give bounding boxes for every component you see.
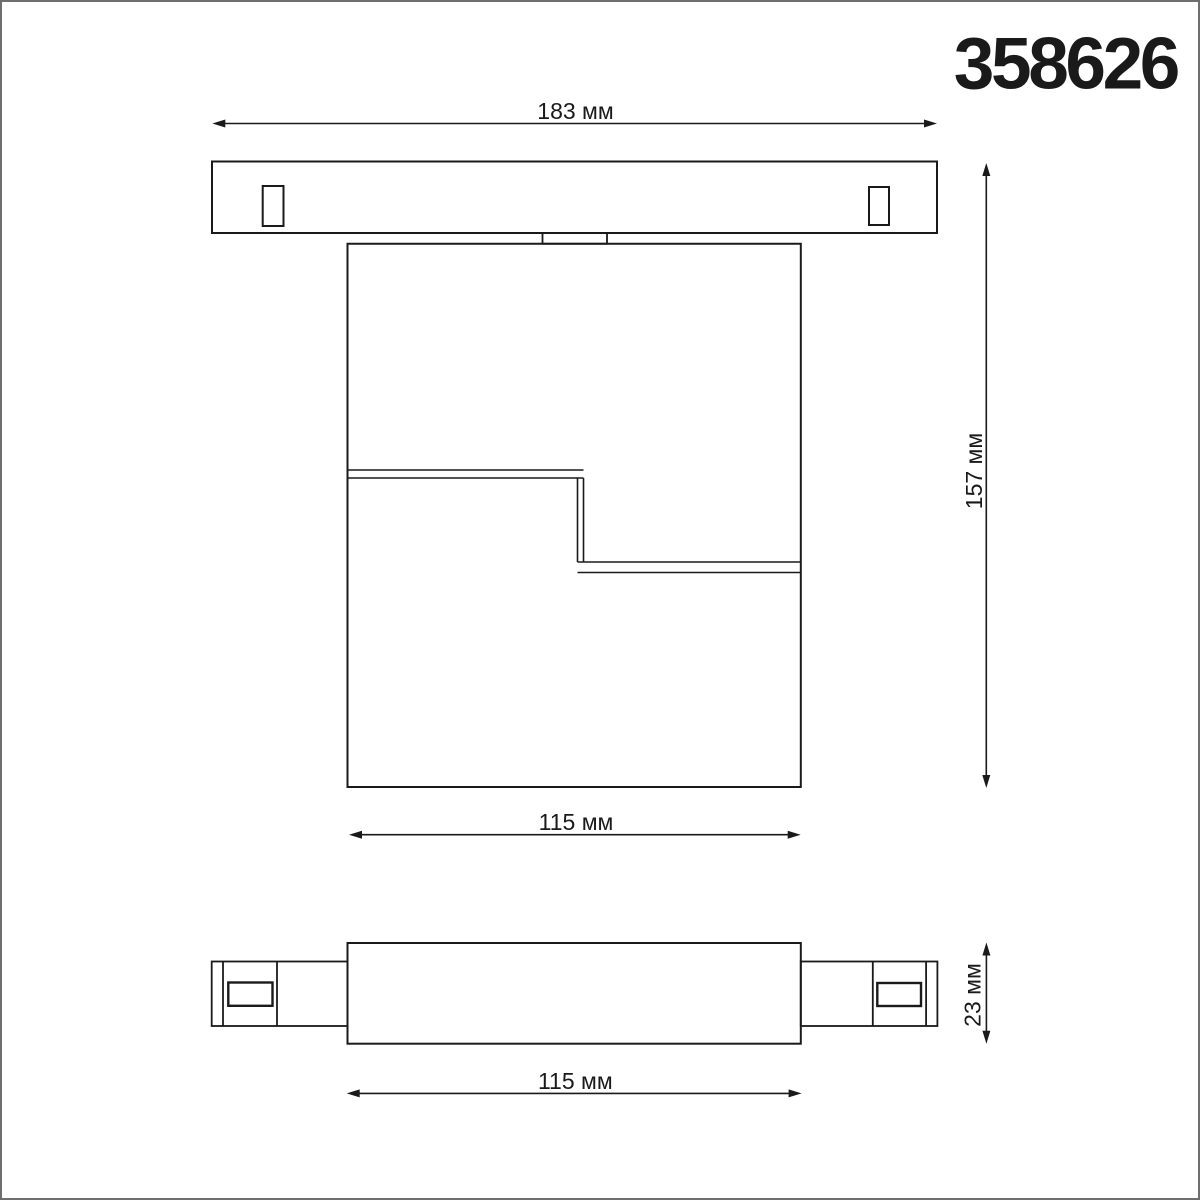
svg-text:115 мм: 115 мм: [538, 1068, 613, 1094]
svg-text:23 мм: 23 мм: [960, 963, 986, 1027]
svg-text:157 мм: 157 мм: [961, 433, 987, 509]
svg-text:183 мм: 183 мм: [537, 98, 613, 124]
svg-text:358626: 358626: [954, 24, 1178, 105]
svg-text:115 мм: 115 мм: [539, 809, 614, 835]
